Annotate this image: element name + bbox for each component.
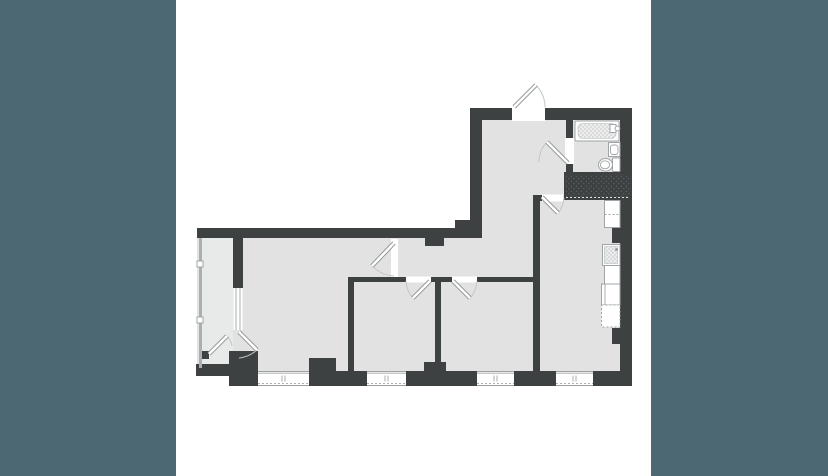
wall-segment [233, 238, 243, 288]
counter-segment [605, 266, 621, 285]
counter-appliance [602, 305, 621, 327]
balcony-window [234, 288, 243, 330]
window-living-room [258, 372, 309, 386]
duct-shaft [564, 172, 632, 200]
glazing-mullion [197, 317, 203, 323]
toilet [599, 158, 621, 172]
window-bedroom-1 [367, 372, 406, 386]
wall-segment [435, 282, 441, 371]
floorplan-card [176, 0, 651, 476]
wall-segment [612, 228, 620, 243]
floorplan-drawing [176, 0, 651, 476]
wall-segment [309, 358, 336, 371]
wall-segment [425, 238, 444, 246]
wall-segment [612, 328, 620, 344]
entrance-door [512, 85, 545, 121]
kitchen-sink [603, 245, 621, 266]
counter-segment [605, 201, 621, 228]
washbasin [609, 143, 621, 157]
wall-segment [424, 362, 446, 371]
wall-segment [620, 108, 632, 386]
window-bedroom-2 [477, 372, 514, 386]
kitchen-counter [602, 201, 621, 328]
sink-faucet [615, 248, 618, 251]
page-background [0, 0, 828, 476]
wall-segment [348, 282, 354, 371]
wall-segment [533, 195, 540, 371]
wall-segment [470, 108, 482, 238]
glazing-mullion [197, 261, 203, 267]
wall-segment [197, 228, 482, 238]
wall-segment [470, 108, 632, 120]
window-kitchen [556, 372, 593, 386]
stove [602, 284, 621, 305]
bathtub-knob [615, 126, 620, 131]
bathtub [575, 121, 620, 141]
wall-segment [229, 351, 258, 386]
wall-segment [348, 277, 533, 282]
